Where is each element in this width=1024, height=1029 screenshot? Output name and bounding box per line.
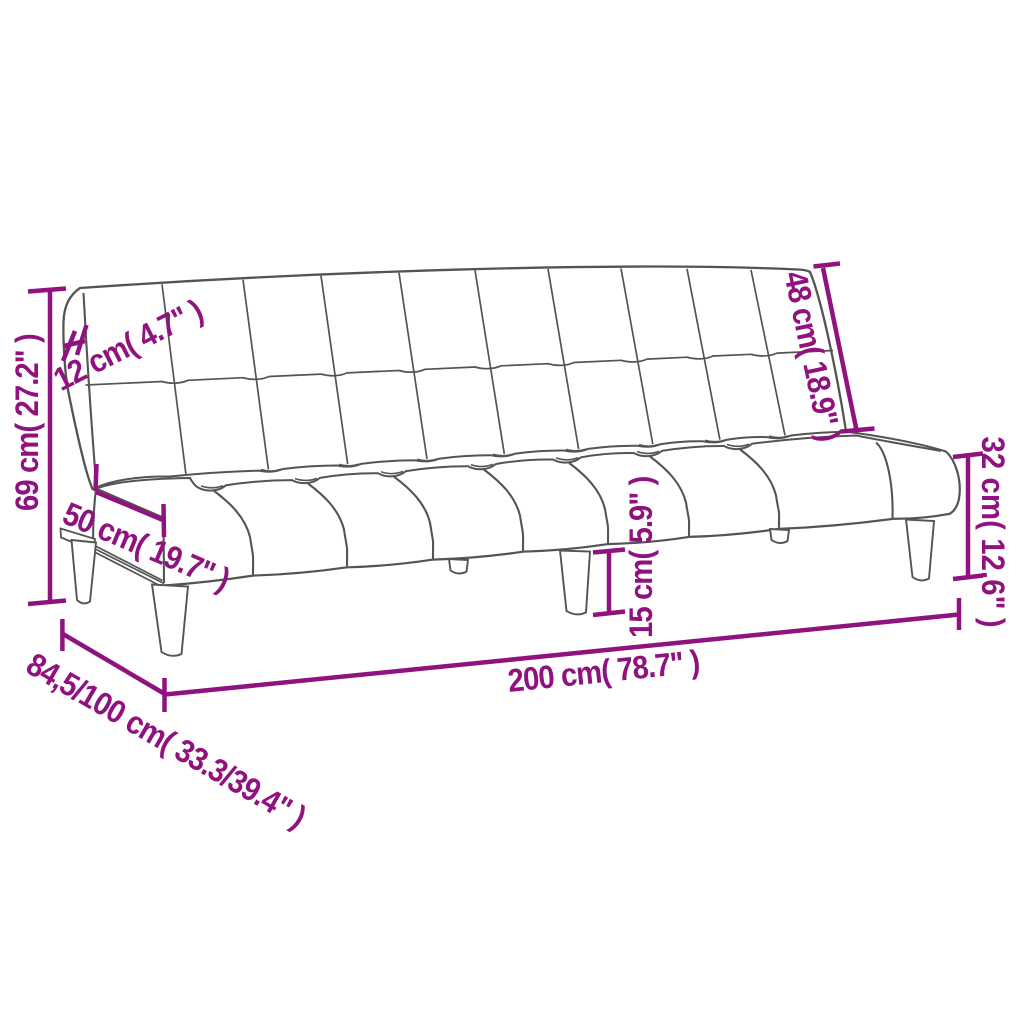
svg-text:15 cm( 5.9" ): 15 cm( 5.9" ) — [623, 477, 660, 638]
svg-text:32 cm( 12.6" ): 32 cm( 12.6" ) — [975, 437, 1012, 628]
svg-text:69 cm( 27.2" ): 69 cm( 27.2" ) — [9, 334, 46, 511]
